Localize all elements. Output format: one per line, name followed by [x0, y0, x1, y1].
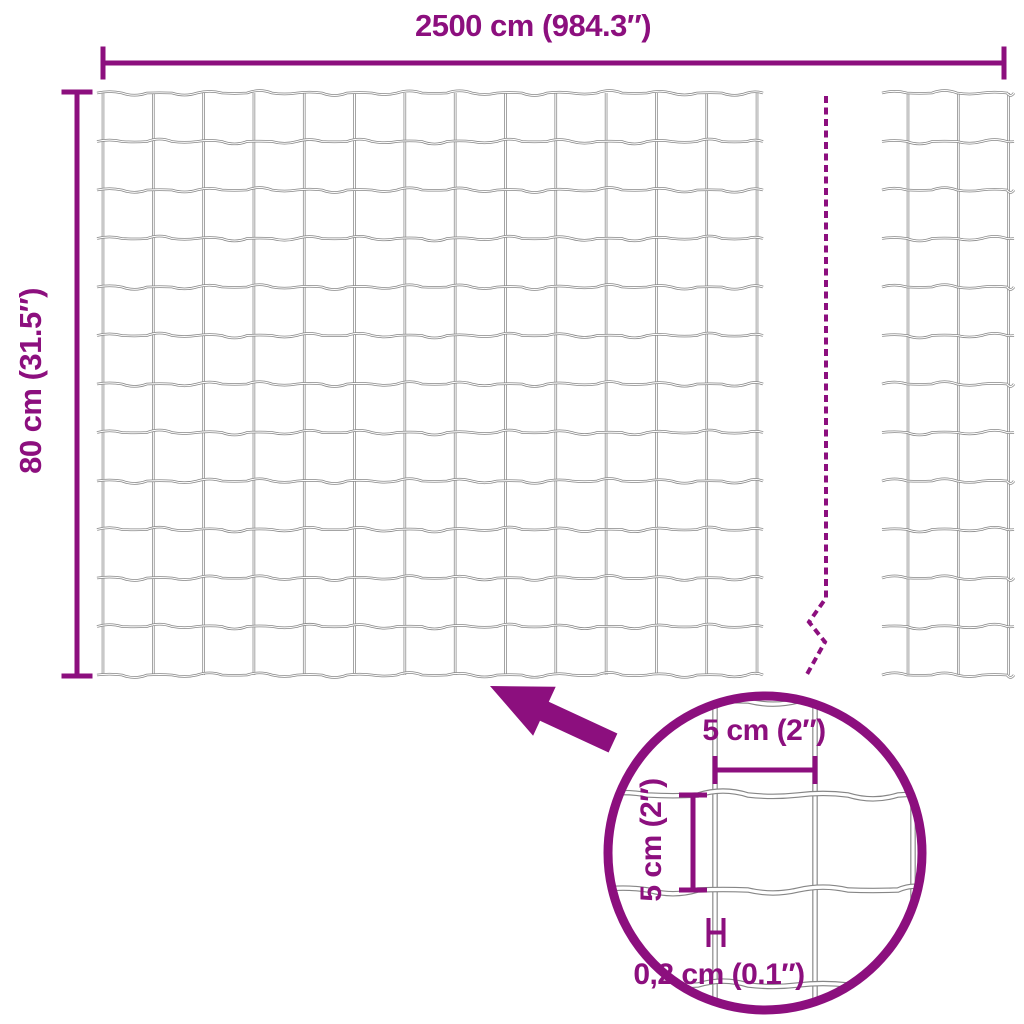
- cell-height-dimension: [679, 795, 707, 890]
- width-dimension: [103, 47, 1004, 80]
- cell-width-label: 5 cm (2″): [702, 714, 825, 748]
- continuation-dashed-line-icon: [806, 96, 826, 676]
- fence-mesh-main: [97, 91, 763, 678]
- zoom-pointer-arrow-icon: [490, 686, 617, 753]
- wire-thickness-label: 0,2 cm (0.1″): [633, 958, 804, 992]
- mesh-fence-drawing: [0, 0, 1024, 1024]
- total-width-label: 2500 cm (984.3″): [415, 8, 651, 44]
- height-dimension: [62, 92, 93, 676]
- product-dimension-diagram: 2500 cm (984.3″) 80 cm (31.5″) 5 cm (2″)…: [0, 0, 1024, 1024]
- cell-height-label: 5 cm (2″): [635, 778, 669, 901]
- cell-width-dimension: [715, 756, 815, 784]
- fence-mesh-right: [882, 91, 1014, 678]
- total-height-label: 80 cm (31.5″): [13, 288, 49, 474]
